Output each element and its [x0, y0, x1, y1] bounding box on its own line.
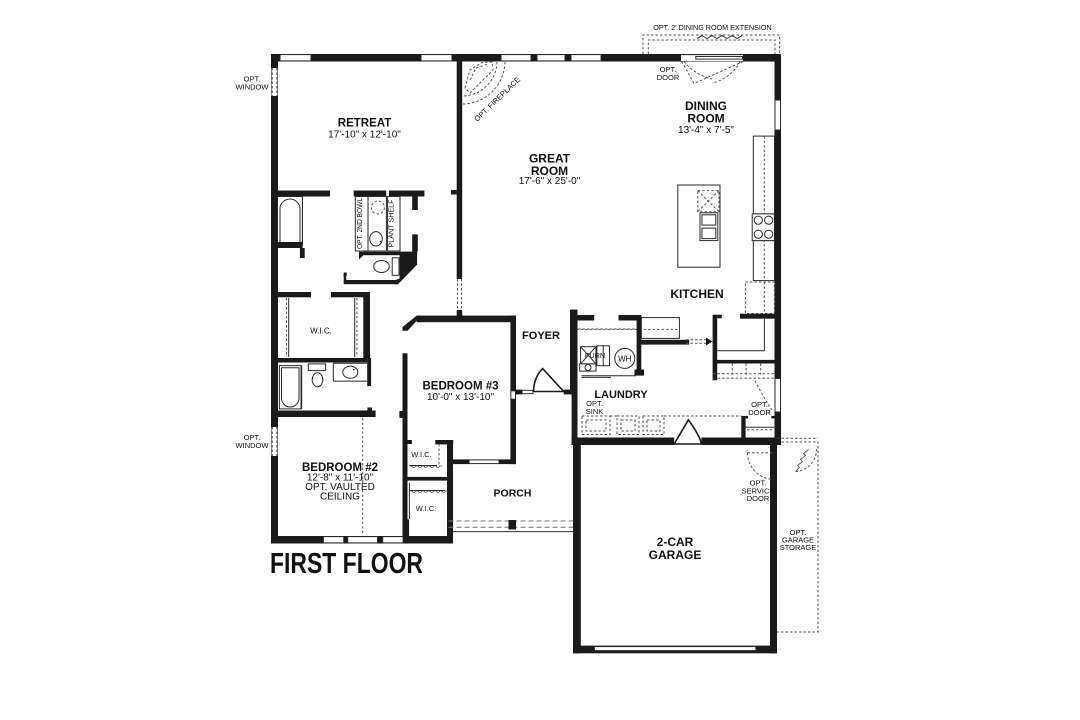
svg-text:GARAGE: GARAGE: [649, 548, 702, 562]
svg-text:STORAGE: STORAGE: [780, 543, 817, 552]
svg-text:WINDOW: WINDOW: [236, 441, 270, 450]
svg-text:PORCH: PORCH: [494, 488, 532, 500]
svg-text:PLANT SHELF: PLANT SHELF: [389, 200, 396, 248]
svg-text:W.I.C.: W.I.C.: [416, 504, 436, 513]
svg-text:17'-6" x 25'-0": 17'-6" x 25'-0": [519, 176, 581, 187]
svg-text:CEILING: CEILING: [320, 492, 360, 503]
svg-text:W.I.C.: W.I.C.: [310, 327, 332, 336]
svg-text:KITCHEN: KITCHEN: [670, 287, 723, 301]
svg-text:ROOM: ROOM: [687, 112, 724, 126]
svg-text:W.I.C.: W.I.C.: [411, 450, 431, 459]
svg-text:2-CAR: 2-CAR: [657, 535, 694, 549]
svg-text:OPT. 2' DINING ROOM EXTENSION: OPT. 2' DINING ROOM EXTENSION: [653, 23, 771, 32]
svg-text:FIRST FLOOR: FIRST FLOOR: [270, 548, 423, 580]
svg-text:17'-10" x 12'-10": 17'-10" x 12'-10": [328, 129, 401, 140]
svg-text:RETREAT: RETREAT: [338, 117, 391, 129]
svg-text:DOOR: DOOR: [748, 408, 771, 417]
svg-text:FOYER: FOYER: [522, 330, 560, 342]
svg-text:OPT. 2ND BOWL: OPT. 2ND BOWL: [357, 198, 364, 249]
svg-text:SINK: SINK: [586, 407, 604, 416]
svg-text:13'-4" x 7'-5": 13'-4" x 7'-5": [678, 125, 734, 136]
svg-text:WH: WH: [618, 354, 632, 363]
svg-text:DOOR: DOOR: [657, 73, 680, 82]
svg-text:FURN: FURN: [585, 351, 605, 360]
svg-text:10'-0" x 13'-10": 10'-0" x 13'-10": [427, 392, 495, 403]
svg-text:WINDOW: WINDOW: [236, 83, 270, 92]
svg-text:DOOR: DOOR: [747, 494, 770, 503]
